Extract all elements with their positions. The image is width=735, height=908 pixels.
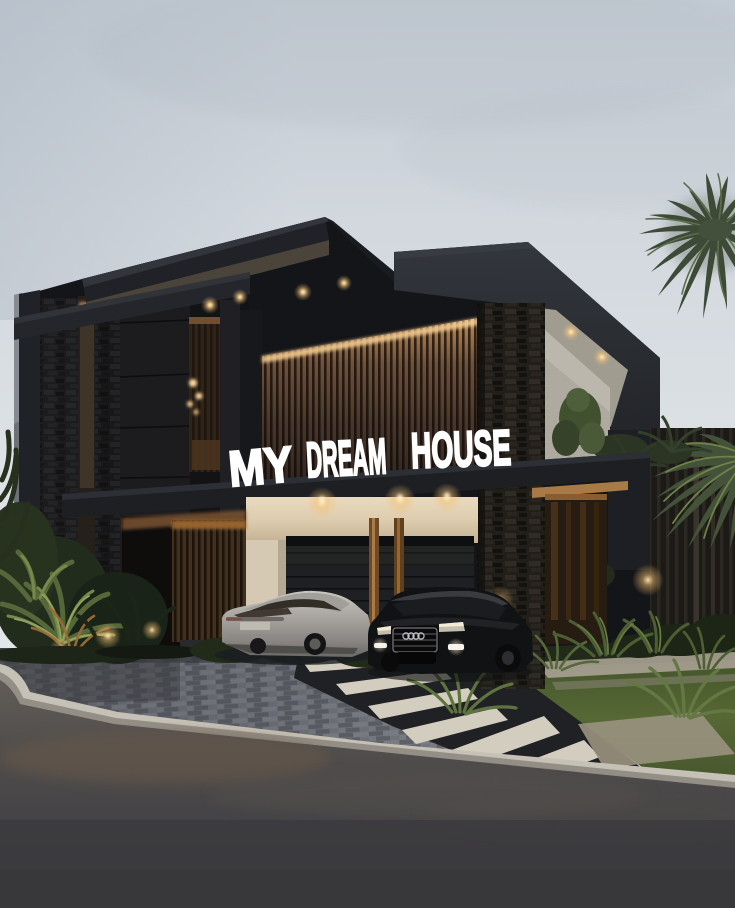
svg-text:HOUSE: HOUSE: [410, 420, 512, 479]
svg-text:DREAM: DREAM: [305, 428, 388, 488]
svg-text:MY: MY: [226, 436, 295, 497]
